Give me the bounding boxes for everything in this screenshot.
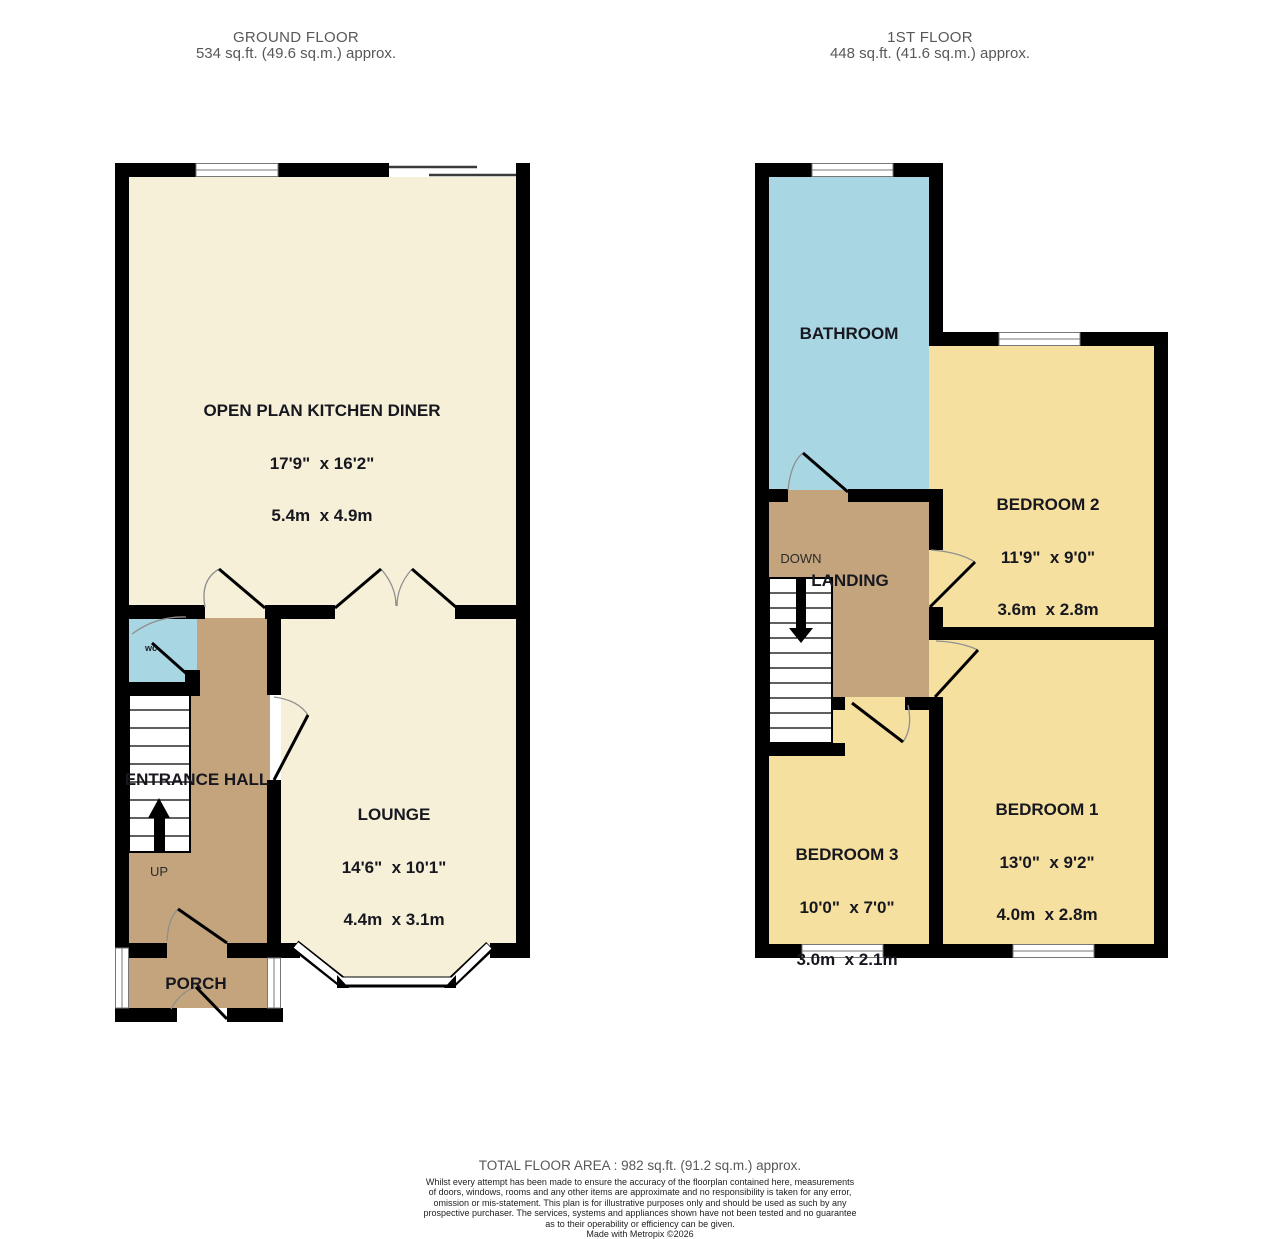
bathroom-window [812,164,893,177]
bedroom3-dims-imperial: 10'0" x 7'0" [796,899,899,917]
disclaimer-line: of doors, windows, rooms and any other i… [0,1187,1280,1197]
bedroom2-name: BEDROOM 2 [997,496,1100,514]
bedroom1-name: BEDROOM 1 [996,801,1099,819]
room-label-bedroom2: BEDROOM 2 11'9" x 9'0" 3.6m x 2.8m [997,461,1100,654]
room-label-landing: LANDING [811,572,888,590]
bedroom2-window [999,333,1080,346]
stairs-up-label: UP [150,864,168,879]
porch-left-window [116,948,129,1008]
disclaimer: Whilst every attempt has been made to en… [0,1177,1280,1239]
bedroom2-dims-imperial: 11'9" x 9'0" [997,549,1100,567]
room-label-bathroom: BATHROOM [800,325,899,343]
room-label-kitchen: OPEN PLAN KITCHEN DINER 17'9" x 16'2" 5.… [203,367,440,560]
room-label-porch: PORCH [165,975,226,993]
room-label-lounge: LOUNGE 14'6" x 10'1" 4.4m x 3.1m [342,771,447,964]
floorplan-page: GROUND FLOOR 534 sq.ft. (49.6 sq.m.) app… [0,0,1280,1239]
lounge-dims-metric: 4.4m x 3.1m [342,911,447,929]
stairs-down-label: DOWN [780,551,821,566]
porch-right-window [268,958,281,1008]
disclaimer-line: Made with Metropix ©2026 [0,1229,1280,1239]
bedroom3-name: BEDROOM 3 [796,846,899,864]
room-label-bedroom3: BEDROOM 3 10'0" x 7'0" 3.0m x 2.1m [796,811,899,1004]
kitchen-dims-imperial: 17'9" x 16'2" [203,455,440,473]
disclaimer-line: prospective purchaser. The services, sys… [0,1208,1280,1218]
disclaimer-line: Whilst every attempt has been made to en… [0,1177,1280,1187]
kitchen-window [196,164,278,177]
kitchen-name: OPEN PLAN KITCHEN DINER [203,402,440,420]
bedroom3-dims-metric: 3.0m x 2.1m [796,951,899,969]
disclaimer-line: omission or mis-statement. This plan is … [0,1198,1280,1208]
first-stairs [769,578,832,743]
kitchen-dims-metric: 5.4m x 4.9m [203,507,440,525]
disclaimer-line: as to their operability or efficiency ca… [0,1219,1280,1229]
room-label-bedroom1: BEDROOM 1 13'0" x 9'2" 4.0m x 2.8m [996,766,1099,959]
bedroom1-dims-metric: 4.0m x 2.8m [996,906,1099,924]
lounge-name: LOUNGE [342,806,447,824]
bedroom1-dims-imperial: 13'0" x 9'2" [996,854,1099,872]
ground-floor-plan [115,163,530,1022]
kitchen-sliding-opening [389,167,516,175]
room-label-wc: wc [145,643,157,653]
ground-room-fills [129,177,516,1008]
lounge-dims-imperial: 14'6" x 10'1" [342,859,447,877]
bedroom2-dims-metric: 3.6m x 2.8m [997,601,1100,619]
total-floor-area: TOTAL FLOOR AREA : 982 sq.ft. (91.2 sq.m… [0,1158,1280,1173]
room-label-entrance-hall: ENTRANCE HALL [125,771,270,789]
